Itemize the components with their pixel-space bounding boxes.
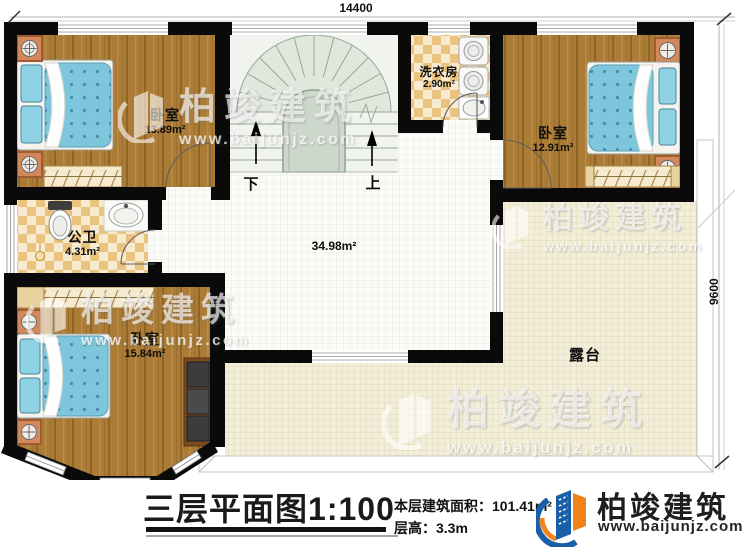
window	[312, 350, 408, 363]
bathroom-sink	[104, 200, 148, 231]
floor-height-value: 3.3m	[436, 520, 468, 536]
window	[537, 22, 637, 35]
dimension-right: 9600	[707, 262, 721, 322]
floor-info: 本层建筑面积：101.41m² 层高：3.3m	[394, 495, 552, 540]
washing-machine	[459, 37, 488, 65]
bed	[17, 60, 113, 150]
plan-scale-text: 1:100	[308, 491, 395, 527]
nightstand	[17, 152, 42, 177]
wardrobe	[44, 166, 122, 187]
nightstand	[655, 38, 680, 63]
stair-up-label: 上	[360, 172, 386, 193]
floor-plan-page: 卧室 13.89m² 公卫 4.31m² 卧室 15.84m² 洗衣房 2.90…	[0, 0, 750, 552]
window	[232, 22, 367, 35]
bed	[17, 334, 110, 418]
stair-down-label: 下	[238, 173, 264, 194]
brand-logo-icon	[536, 483, 592, 547]
window	[428, 22, 470, 35]
nightstand	[17, 310, 41, 334]
title-underline	[146, 527, 386, 532]
terrace-parapet-bottom	[199, 456, 713, 472]
plan-title-text: 三层平面图	[143, 491, 308, 527]
laundry-sink	[459, 97, 489, 119]
dimension-top: 14400	[320, 1, 392, 15]
toilet	[48, 201, 72, 240]
title-underline-thin	[146, 535, 398, 537]
floor-height-label: 层高：	[394, 520, 436, 536]
pillow	[21, 106, 42, 143]
bed	[587, 62, 680, 154]
wardrobe	[585, 166, 680, 187]
staircase	[230, 35, 398, 172]
title-block: 三层平面图1:100 本层建筑面积：101.41m² 层高：3.3m 柏竣建筑 …	[0, 480, 750, 552]
nightstand	[17, 36, 42, 61]
cabinet	[184, 358, 212, 446]
washing-machine	[459, 67, 488, 95]
window	[4, 205, 17, 273]
pillow	[659, 109, 676, 145]
pillow	[659, 68, 676, 104]
stair-core	[283, 90, 345, 172]
floor-area-row: 本层建筑面积：101.41m²	[394, 495, 552, 517]
floor-height-row: 层高：3.3m	[394, 517, 552, 539]
pillow	[21, 65, 42, 102]
pillow	[20, 339, 40, 374]
terrace-door	[490, 225, 503, 312]
plan-title: 三层平面图1:100	[143, 484, 395, 530]
nightstand	[17, 420, 41, 444]
brand-website: www.baijunjz.com	[598, 518, 743, 535]
floor-plan-drawing	[0, 0, 750, 482]
window	[58, 22, 168, 35]
floor-area-label: 本层建筑面积：	[394, 498, 492, 514]
pillow	[20, 378, 40, 413]
wardrobe	[17, 287, 154, 308]
